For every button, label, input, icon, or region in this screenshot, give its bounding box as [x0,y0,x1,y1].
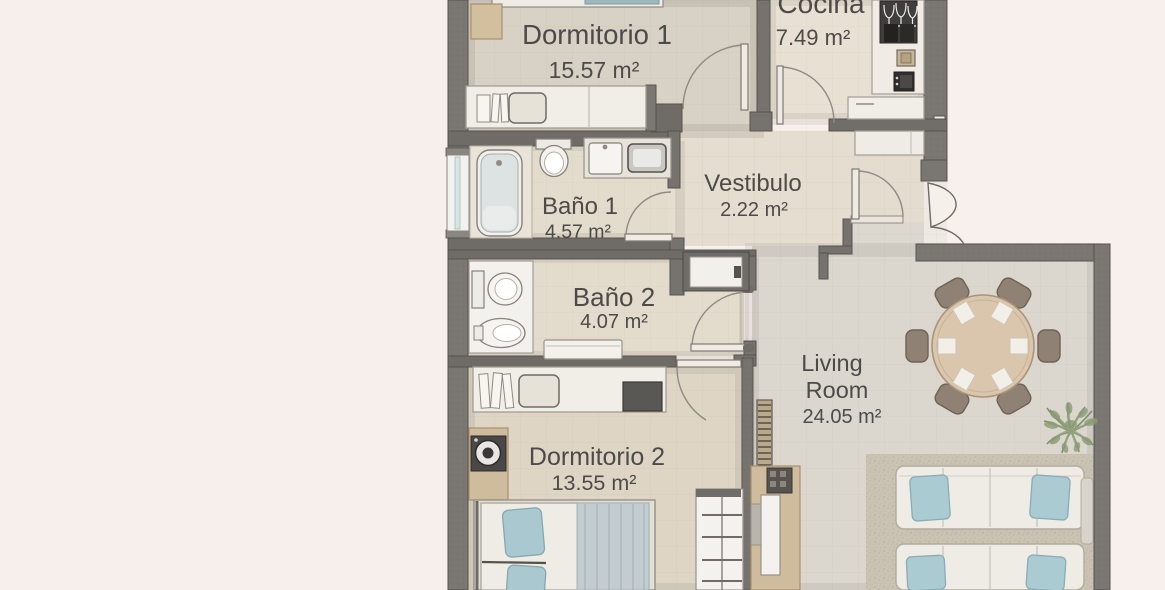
svg-text:4.57 m²: 4.57 m² [545,221,612,243]
svg-text:Dormitorio 1: Dormitorio 1 [522,19,672,50]
svg-text:Room: Room [806,377,869,403]
svg-text:4.07 m²: 4.07 m² [580,311,648,333]
svg-text:Dormitorio 2: Dormitorio 2 [529,443,665,471]
svg-text:Baño 2: Baño 2 [573,282,655,312]
svg-text:Baño 1: Baño 1 [542,193,618,220]
svg-text:Cocina: Cocina [777,0,865,19]
svg-text:2.22 m²: 2.22 m² [720,199,788,221]
svg-text:24.05 m²: 24.05 m² [803,406,882,428]
svg-text:Living: Living [801,350,862,376]
svg-text:15.57 m²: 15.57 m² [549,57,640,83]
svg-text:7.49 m²: 7.49 m² [776,25,851,50]
svg-text:Vestibulo: Vestibulo [704,170,801,197]
svg-text:13.55 m²: 13.55 m² [552,471,637,495]
